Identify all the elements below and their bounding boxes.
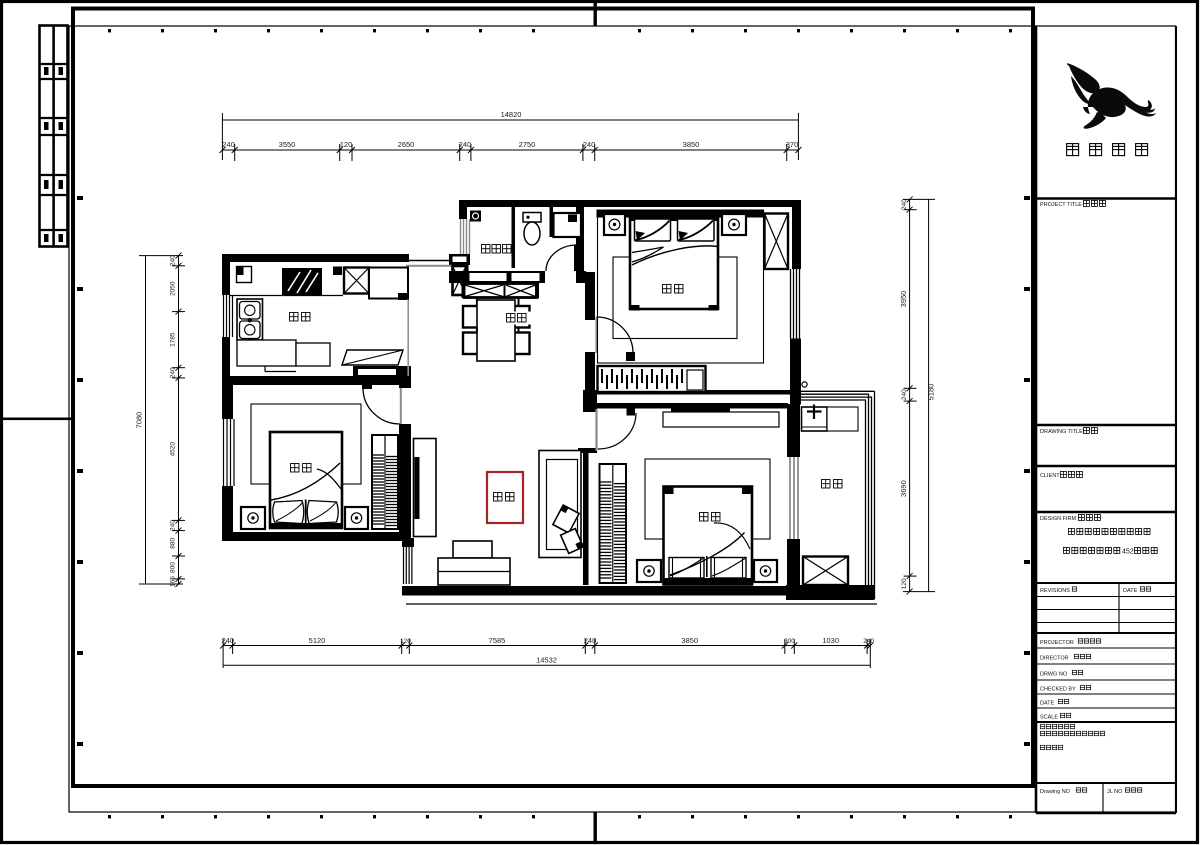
svg-text:2050: 2050	[170, 281, 177, 296]
svg-text:120: 120	[340, 140, 353, 149]
svg-text:1030: 1030	[822, 636, 839, 645]
svg-text:240: 240	[901, 389, 908, 400]
svg-text:240: 240	[222, 636, 235, 645]
svg-text:4520: 4520	[170, 442, 177, 457]
svg-text:165: 165	[170, 576, 177, 587]
svg-text:3850: 3850	[683, 140, 700, 149]
svg-text:2650: 2650	[398, 140, 415, 149]
svg-text:7080: 7080	[135, 412, 144, 429]
svg-text:REVISIONS: REVISIONS	[1040, 588, 1070, 594]
svg-text:5180: 5180	[927, 384, 936, 401]
svg-text:240: 240	[170, 520, 177, 531]
svg-text:3550: 3550	[279, 140, 296, 149]
svg-text:3850: 3850	[681, 636, 698, 645]
svg-text:Drawing NO: Drawing NO	[1040, 789, 1071, 795]
svg-text:JL NO: JL NO	[1107, 789, 1123, 795]
svg-text:DATE: DATE	[1040, 701, 1055, 707]
svg-text:240: 240	[170, 367, 177, 378]
svg-text:452: 452	[1122, 549, 1134, 556]
svg-text:DATE: DATE	[1123, 588, 1138, 594]
svg-text:370: 370	[786, 140, 799, 149]
svg-text:880: 880	[170, 537, 177, 548]
svg-text:14532: 14532	[536, 656, 557, 665]
svg-text:240: 240	[170, 255, 177, 266]
svg-text:3690: 3690	[899, 480, 908, 497]
svg-text:DRAWING TITLE: DRAWING TITLE	[1040, 429, 1083, 435]
svg-text:CLIENT: CLIENT	[1040, 473, 1060, 479]
svg-text:DESIGN FIRM: DESIGN FIRM	[1040, 516, 1076, 522]
svg-text:240: 240	[222, 140, 235, 149]
svg-text:120: 120	[400, 638, 411, 645]
svg-text:800: 800	[170, 562, 177, 573]
svg-text:300: 300	[784, 638, 795, 645]
svg-text:240: 240	[584, 636, 597, 645]
svg-text:CHECKED BY: CHECKED BY	[1040, 687, 1076, 693]
svg-text:1785: 1785	[170, 332, 177, 347]
svg-text:PROJECT TITLE: PROJECT TITLE	[1040, 202, 1082, 208]
svg-text:14820: 14820	[501, 110, 522, 119]
svg-text:5120: 5120	[309, 636, 326, 645]
svg-text:240: 240	[583, 140, 596, 149]
svg-text:240: 240	[901, 199, 908, 210]
svg-text:120: 120	[901, 578, 908, 589]
svg-text:PROJECTOR: PROJECTOR	[1040, 640, 1074, 646]
svg-text:2750: 2750	[519, 140, 536, 149]
svg-text:DIRECTOR: DIRECTOR	[1040, 656, 1069, 662]
svg-text:240: 240	[459, 140, 472, 149]
svg-text:240: 240	[863, 638, 874, 645]
svg-text:3950: 3950	[899, 291, 908, 308]
svg-text:DRWG NO: DRWG NO	[1040, 672, 1068, 678]
svg-text:7585: 7585	[489, 636, 506, 645]
svg-text:SCALE: SCALE	[1040, 715, 1058, 721]
